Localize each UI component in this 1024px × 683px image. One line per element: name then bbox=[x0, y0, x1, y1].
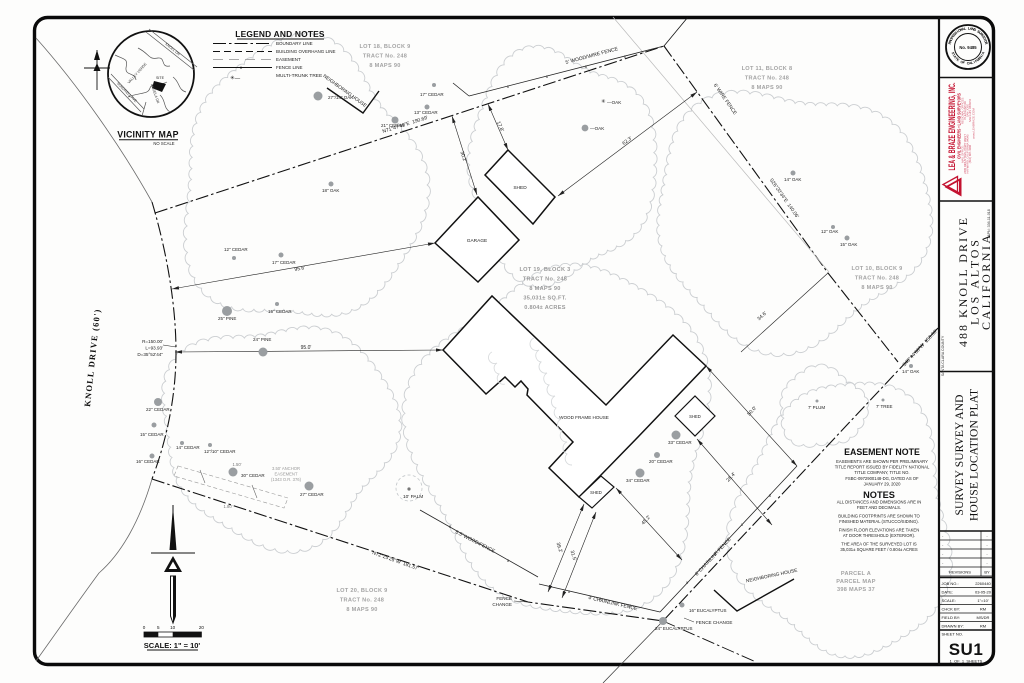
svg-text:1.80': 1.80' bbox=[224, 504, 233, 509]
svg-text:No. 9485: No. 9485 bbox=[959, 45, 977, 50]
svg-text:24" PINE: 24" PINE bbox=[253, 337, 271, 342]
svg-text:34" CEDAR: 34" CEDAR bbox=[626, 478, 650, 483]
svg-text:FENCE LINE: FENCE LINE bbox=[276, 65, 303, 70]
svg-text:TRACT No. 248: TRACT No. 248 bbox=[745, 76, 789, 82]
svg-text:17" CEDAR: 17" CEDAR bbox=[420, 92, 444, 97]
svg-text:RM: RM bbox=[980, 607, 986, 612]
svg-text:8 MAPS 90: 8 MAPS 90 bbox=[369, 63, 400, 69]
svg-text:35,031± SQUARE FEET / 0.804± A: 35,031± SQUARE FEET / 0.804± ACRES bbox=[840, 547, 918, 552]
svg-text:15" CEDAR: 15" CEDAR bbox=[268, 309, 292, 314]
svg-text:0: 0 bbox=[143, 625, 146, 630]
svg-text:HOUSE LOCATION PLAT: HOUSE LOCATION PLAT bbox=[969, 389, 981, 521]
svg-text:SANTA CLARA COUNTY: SANTA CLARA COUNTY bbox=[941, 335, 945, 376]
svg-text:REVISIONS: REVISIONS bbox=[949, 570, 971, 575]
svg-text:25" PINE: 25" PINE bbox=[218, 316, 236, 321]
svg-text:16" CEDAR: 16" CEDAR bbox=[136, 459, 160, 464]
svg-text:—OAK: —OAK bbox=[607, 100, 622, 105]
svg-text:3.50' ANCHOR: 3.50' ANCHOR bbox=[272, 466, 300, 471]
svg-text:21" CEDAR: 21" CEDAR bbox=[381, 123, 405, 128]
svg-text:SCALE: 1" = 10': SCALE: 1" = 10' bbox=[144, 641, 201, 650]
svg-text:10' PALM: 10' PALM bbox=[403, 494, 423, 500]
svg-text:(1343 O.R. 376): (1343 O.R. 376) bbox=[271, 477, 302, 482]
svg-text:LOT 11, BLOCK 8: LOT 11, BLOCK 8 bbox=[742, 66, 793, 72]
svg-text:14" OAK: 14" OAK bbox=[902, 369, 919, 374]
svg-text:CHANGE: CHANGE bbox=[492, 602, 512, 607]
svg-text:JOB NO.:: JOB NO.: bbox=[942, 581, 959, 586]
svg-text:EASEMENT NOTE: EASEMENT NOTE bbox=[844, 447, 920, 457]
svg-text:L=93.93': L=93.93' bbox=[145, 346, 163, 351]
svg-text:BUILDING FOOTPRINTS ARE SHOWN: BUILDING FOOTPRINTS ARE SHOWN TO bbox=[838, 514, 920, 519]
svg-text:TITLE REPORT ISSUED BY FIDELIT: TITLE REPORT ISSUED BY FIDELITY NATIONAL bbox=[835, 465, 930, 470]
svg-text:33" CEDAR: 33" CEDAR bbox=[668, 440, 692, 445]
svg-text:17" CEDAR: 17" CEDAR bbox=[272, 260, 296, 265]
svg-text:12" OAK: 12" OAK bbox=[821, 229, 838, 234]
svg-text:12"/10" CEDAR: 12"/10" CEDAR bbox=[204, 449, 236, 454]
svg-text:JANUARY 29, 2020: JANUARY 29, 2020 bbox=[864, 481, 902, 486]
svg-text:ALL DISTANCES AND DIMENSIONS A: ALL DISTANCES AND DIMENSIONS ARE IN bbox=[837, 500, 921, 505]
svg-text:NO SCALE: NO SCALE bbox=[153, 141, 174, 146]
svg-text:398 MAPS 37: 398 MAPS 37 bbox=[837, 587, 875, 593]
svg-text:THE AREA OF THE SURVEYED LOT I: THE AREA OF THE SURVEYED LOT IS bbox=[841, 542, 917, 547]
svg-text:FINISHED MATERIAL (STUCCO/SIDI: FINISHED MATERIAL (STUCCO/SIDING). bbox=[839, 519, 919, 524]
svg-text:FIELD BY:: FIELD BY: bbox=[942, 615, 961, 620]
svg-text:27"/14" OAK: 27"/14" OAK bbox=[328, 95, 353, 100]
svg-text:SITE: SITE bbox=[156, 76, 165, 80]
svg-text:DRAWN BY:: DRAWN BY: bbox=[942, 624, 964, 629]
svg-text:7' PLUM: 7' PLUM bbox=[808, 405, 825, 410]
svg-text:RM: RM bbox=[980, 624, 986, 629]
svg-text:CHCK BY:: CHCK BY: bbox=[942, 607, 961, 612]
svg-text:13" CEDAR: 13" CEDAR bbox=[414, 110, 438, 115]
svg-text:TRACT No. 248: TRACT No. 248 bbox=[340, 598, 384, 604]
svg-text:SHEET NO.: SHEET NO. bbox=[942, 632, 964, 637]
svg-text:EASEMENT: EASEMENT bbox=[276, 57, 301, 62]
svg-text:✳—: ✳— bbox=[230, 74, 241, 81]
svg-text:20" CEDAR: 20" CEDAR bbox=[649, 459, 673, 464]
svg-text:SURVEY SURVEY AND: SURVEY SURVEY AND bbox=[954, 395, 966, 516]
svg-text:7' TREE: 7' TREE bbox=[876, 404, 893, 409]
svg-text:APN: 336-11-018: APN: 336-11-018 bbox=[987, 209, 991, 237]
svg-text:27" CEDAR: 27" CEDAR bbox=[300, 492, 324, 497]
svg-text:TRACT No. 248: TRACT No. 248 bbox=[523, 277, 567, 283]
svg-text:EASEMENT: EASEMENT bbox=[274, 472, 297, 477]
svg-text:FENCE: FENCE bbox=[496, 596, 512, 601]
svg-text:2260440: 2260440 bbox=[975, 581, 991, 586]
svg-text:BY: BY bbox=[984, 570, 990, 575]
svg-text:FEET AND DECIMALS.: FEET AND DECIMALS. bbox=[857, 505, 901, 510]
svg-text:—OAK: —OAK bbox=[590, 126, 605, 131]
svg-text:14" CEDAR: 14" CEDAR bbox=[176, 445, 200, 450]
svg-text:0.804± ACRES: 0.804± ACRES bbox=[524, 305, 566, 311]
svg-text:22" CEDAR: 22" CEDAR bbox=[146, 407, 170, 412]
svg-text:FINISH FLOOR ELEVATIONS ARE TA: FINISH FLOOR ELEVATIONS ARE TAKEN bbox=[839, 528, 919, 533]
svg-text:15" OAK: 15" OAK bbox=[840, 242, 857, 247]
svg-text:FENCE CHANGE: FENCE CHANGE bbox=[696, 620, 733, 625]
svg-text:20: 20 bbox=[199, 625, 205, 630]
svg-text:PARCEL MAP: PARCEL MAP bbox=[836, 579, 875, 585]
svg-text:95.0': 95.0' bbox=[301, 345, 312, 351]
svg-text:TRACT No. 248: TRACT No. 248 bbox=[855, 276, 899, 282]
svg-text:LEGEND AND NOTES: LEGEND AND NOTES bbox=[235, 29, 325, 39]
svg-text:LOT 10, BLOCK 9: LOT 10, BLOCK 9 bbox=[851, 266, 902, 272]
svg-text:WOOD FRAME HOUSE: WOOD FRAME HOUSE bbox=[559, 415, 609, 420]
svg-text:8 MAPS 90: 8 MAPS 90 bbox=[751, 85, 782, 91]
svg-text:✳: ✳ bbox=[601, 98, 606, 105]
svg-text:www.LEABRAZE.COM: www.LEABRAZE.COM bbox=[971, 108, 975, 139]
svg-text:LOT 20, BLOCK 9: LOT 20, BLOCK 9 bbox=[336, 588, 387, 594]
svg-text:EASEMENTS ARE SHOWN PER PRELIM: EASEMENTS ARE SHOWN PER PRELIMINARY bbox=[836, 459, 928, 464]
svg-text:18" OAK: 18" OAK bbox=[322, 188, 339, 193]
svg-text:FSBC-0972900148-DG, DATED AS O: FSBC-0972900148-DG, DATED AS OF bbox=[845, 476, 919, 481]
svg-text:LOT 19, BLOCK 3: LOT 19, BLOCK 3 bbox=[519, 267, 570, 273]
svg-text:12" CEDAR: 12" CEDAR bbox=[224, 247, 248, 252]
svg-text:AT DOOR THRESHOLD (EXTERIOR).: AT DOOR THRESHOLD (EXTERIOR). bbox=[843, 533, 915, 538]
svg-text:SHED: SHED bbox=[590, 490, 602, 495]
svg-text:SHED: SHED bbox=[689, 414, 701, 419]
svg-text:15" CEDAR: 15" CEDAR bbox=[140, 432, 164, 437]
svg-text:TITLE COMPANY, TITLE NO.: TITLE COMPANY, TITLE NO. bbox=[854, 470, 909, 475]
svg-text:03-05-20: 03-05-20 bbox=[975, 590, 992, 595]
svg-text:14" OAK: 14" OAK bbox=[784, 177, 801, 182]
svg-text:R=150.00': R=150.00' bbox=[142, 339, 163, 344]
svg-text:BUILDING OVERHANG LINE: BUILDING OVERHANG LINE bbox=[276, 49, 336, 54]
svg-text:5: 5 bbox=[157, 625, 160, 630]
svg-text:PARCEL A: PARCEL A bbox=[841, 571, 871, 577]
svg-text:BOUNDARY LINE: BOUNDARY LINE bbox=[276, 41, 313, 46]
svg-text:CALIFORNIA: CALIFORNIA bbox=[979, 234, 993, 330]
svg-text:(510) 887-4086: (510) 887-4086 bbox=[968, 144, 972, 163]
svg-text:SU1: SU1 bbox=[949, 640, 984, 659]
svg-text:DATE:: DATE: bbox=[942, 590, 953, 595]
svg-text:8 MAPS 90: 8 MAPS 90 bbox=[861, 285, 892, 291]
svg-text:VICINITY MAP: VICINITY MAP bbox=[117, 130, 178, 140]
svg-text:1.50': 1.50' bbox=[233, 462, 242, 467]
svg-text:SHED: SHED bbox=[513, 185, 527, 191]
svg-text:24" EUCALYPTUS: 24" EUCALYPTUS bbox=[655, 626, 693, 631]
svg-text:8 MAPS 90: 8 MAPS 90 bbox=[529, 286, 560, 292]
svg-text:MULTI-TRUNK TREE: MULTI-TRUNK TREE bbox=[276, 73, 322, 79]
svg-text:30" CEDAR: 30" CEDAR bbox=[241, 473, 265, 478]
svg-text:NOTES: NOTES bbox=[863, 490, 895, 500]
svg-text:TRACT No. 248: TRACT No. 248 bbox=[363, 54, 407, 60]
svg-text:SCALE:: SCALE: bbox=[942, 598, 956, 603]
svg-text:1 OF 1 SHEETS: 1 OF 1 SHEETS bbox=[950, 659, 983, 664]
svg-text:D=35°52'44": D=35°52'44" bbox=[137, 352, 163, 357]
svg-text:1"=10': 1"=10' bbox=[977, 598, 988, 603]
svg-text:35,031± SQ.FT.: 35,031± SQ.FT. bbox=[523, 296, 566, 302]
svg-text:MS/DR: MS/DR bbox=[977, 615, 990, 620]
svg-text:16" EUCALYPTUS: 16" EUCALYPTUS bbox=[689, 608, 727, 613]
svg-text:LOT 18, BLOCK 9: LOT 18, BLOCK 9 bbox=[359, 44, 410, 50]
svg-text:GARAGE: GARAGE bbox=[467, 238, 488, 244]
svg-text:8 MAPS 90: 8 MAPS 90 bbox=[346, 607, 377, 613]
svg-text:10: 10 bbox=[170, 625, 176, 630]
